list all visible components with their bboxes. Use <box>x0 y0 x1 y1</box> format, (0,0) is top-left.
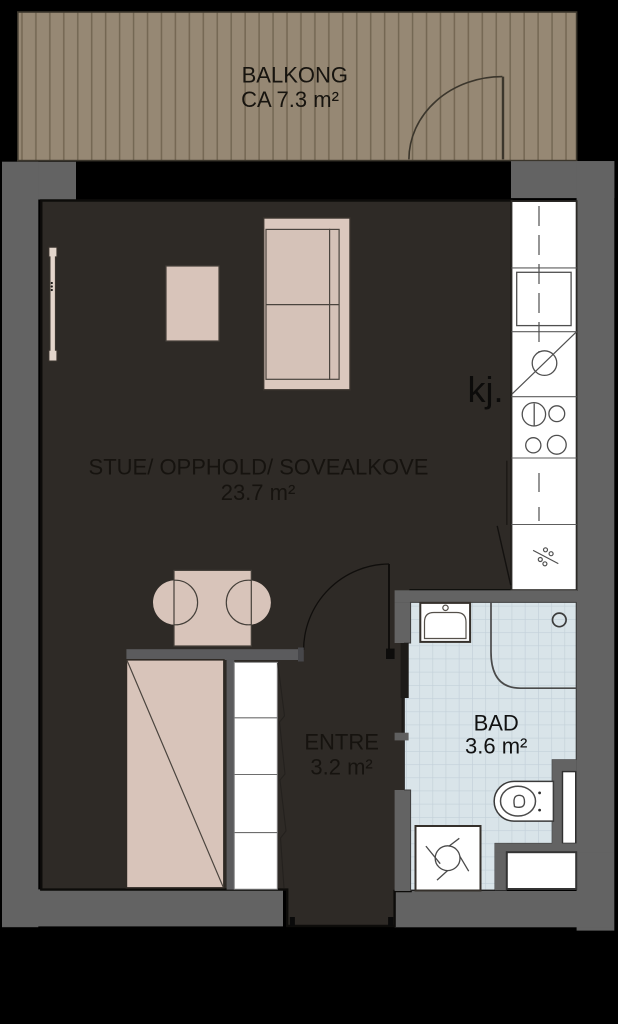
svg-text:ENTRE: ENTRE <box>304 730 379 755</box>
svg-text:BALKONG: BALKONG <box>242 62 348 87</box>
svg-text:CA 7.3 m²: CA 7.3 m² <box>241 87 339 112</box>
svg-text:23.7 m²: 23.7 m² <box>221 480 296 505</box>
svg-text:STUE/ OPPHOLD/ SOVEALKOVE: STUE/ OPPHOLD/ SOVEALKOVE <box>89 454 429 479</box>
svg-text:3.6 m²: 3.6 m² <box>465 734 527 759</box>
svg-text:BAD: BAD <box>474 711 519 736</box>
svg-text:3.2 m²: 3.2 m² <box>310 755 372 780</box>
svg-text:kj.: kj. <box>468 369 504 410</box>
